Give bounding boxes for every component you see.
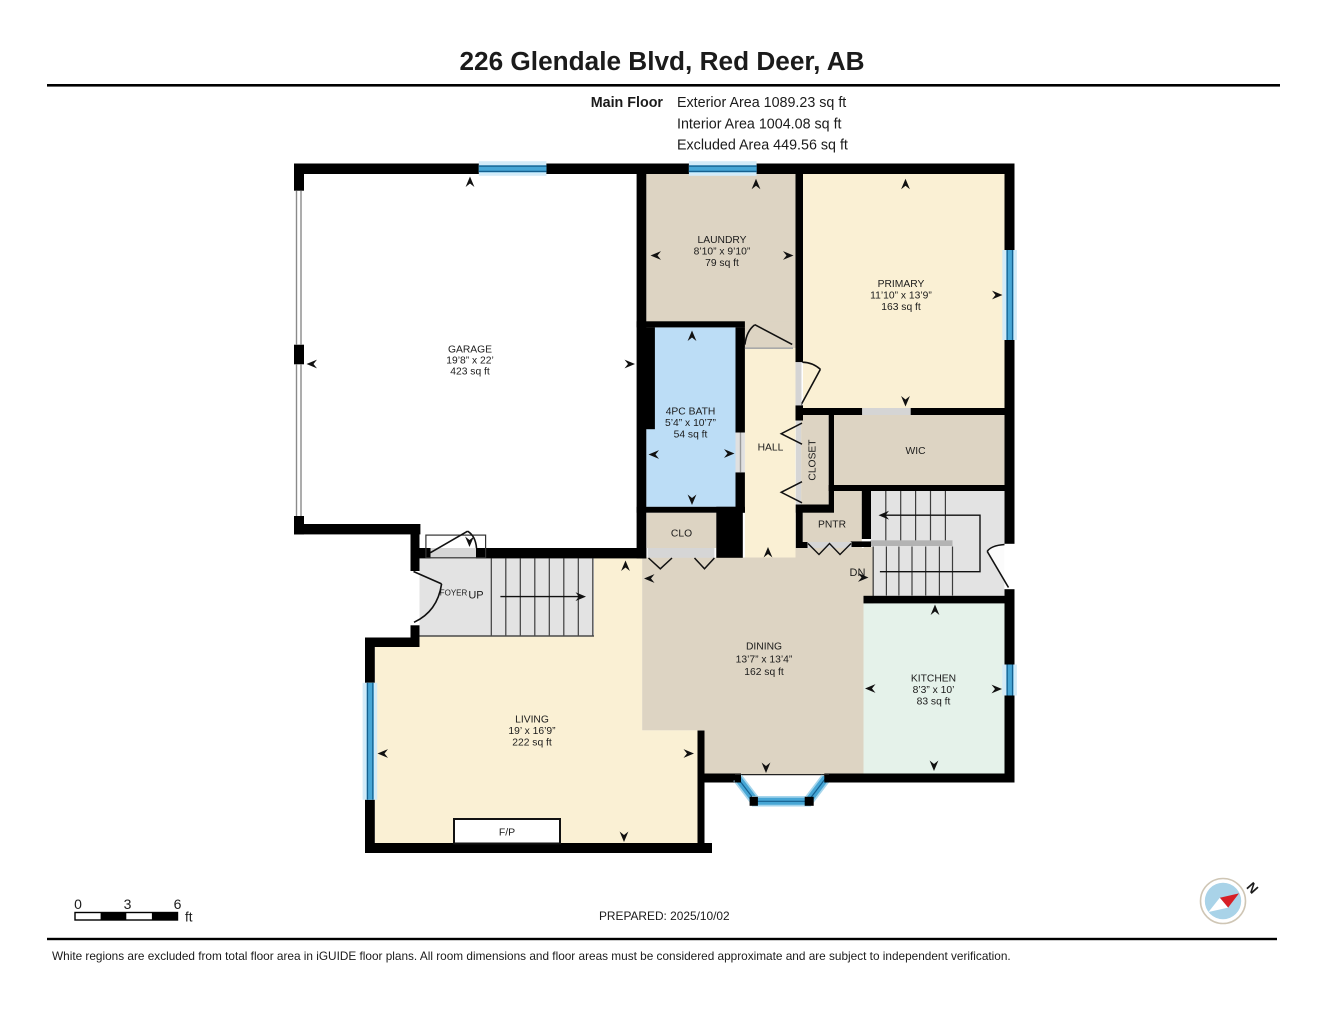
svg-text:83 sq ft: 83 sq ft — [917, 697, 951, 708]
svg-text:162 sq ft: 162 sq ft — [744, 667, 784, 678]
svg-text:HALL: HALL — [758, 443, 784, 454]
svg-text:423 sq ft: 423 sq ft — [450, 366, 490, 377]
svg-text:163 sq ft: 163 sq ft — [881, 302, 921, 313]
svg-text:CLO: CLO — [671, 529, 692, 540]
svg-text:5’4” x 10’7”: 5’4” x 10’7” — [665, 418, 717, 429]
svg-text:Excluded Area 449.56 sq ft: Excluded Area 449.56 sq ft — [677, 138, 848, 154]
svg-text:PRIMARY: PRIMARY — [878, 279, 925, 290]
svg-text:0: 0 — [74, 896, 82, 912]
svg-text:4PC BATH: 4PC BATH — [666, 407, 716, 418]
svg-text:8’10” x 9’10”: 8’10” x 9’10” — [694, 247, 751, 258]
svg-text:19’8” x 22’: 19’8” x 22’ — [446, 355, 494, 366]
svg-text:19’ x 16’9”: 19’ x 16’9” — [508, 726, 556, 737]
svg-text:11’10” x 13’9”: 11’10” x 13’9” — [870, 291, 932, 302]
svg-text:KITCHEN: KITCHEN — [911, 674, 956, 685]
svg-text:PREPARED: 2025/10/02: PREPARED: 2025/10/02 — [599, 909, 730, 923]
svg-text:Exterior Area 1089.23 sq ft: Exterior Area 1089.23 sq ft — [677, 95, 846, 111]
svg-text:WIC: WIC — [905, 446, 926, 457]
svg-text:8’3” x 10’: 8’3” x 10’ — [913, 685, 955, 696]
svg-text:54 sq ft: 54 sq ft — [674, 430, 708, 441]
svg-text:CLOSET: CLOSET — [808, 439, 819, 481]
svg-text:FOYER: FOYER — [440, 589, 468, 598]
svg-text:79 sq ft: 79 sq ft — [705, 258, 739, 269]
svg-text:6: 6 — [174, 896, 182, 912]
svg-text:GARAGE: GARAGE — [448, 344, 492, 355]
svg-text:226 Glendale Blvd, Red Deer, A: 226 Glendale Blvd, Red Deer, AB — [459, 46, 864, 76]
svg-text:LIVING: LIVING — [515, 714, 549, 725]
svg-text:UP: UP — [468, 590, 483, 602]
svg-text:LAUNDRY: LAUNDRY — [697, 235, 746, 246]
svg-text:222 sq ft: 222 sq ft — [512, 737, 552, 748]
svg-text:F/P: F/P — [499, 827, 515, 839]
svg-text:ft: ft — [185, 910, 193, 925]
svg-text:White regions are excluded fro: White regions are excluded from total fl… — [52, 949, 1011, 963]
svg-text:Interior Area 1004.08 sq ft: Interior Area 1004.08 sq ft — [677, 117, 842, 133]
svg-text:3: 3 — [124, 896, 132, 912]
svg-text:Main Floor: Main Floor — [591, 95, 664, 111]
svg-text:PNTR: PNTR — [818, 520, 846, 531]
svg-text:13’7” x 13’4”: 13’7” x 13’4” — [736, 655, 793, 666]
svg-text:DINING: DINING — [746, 642, 782, 653]
